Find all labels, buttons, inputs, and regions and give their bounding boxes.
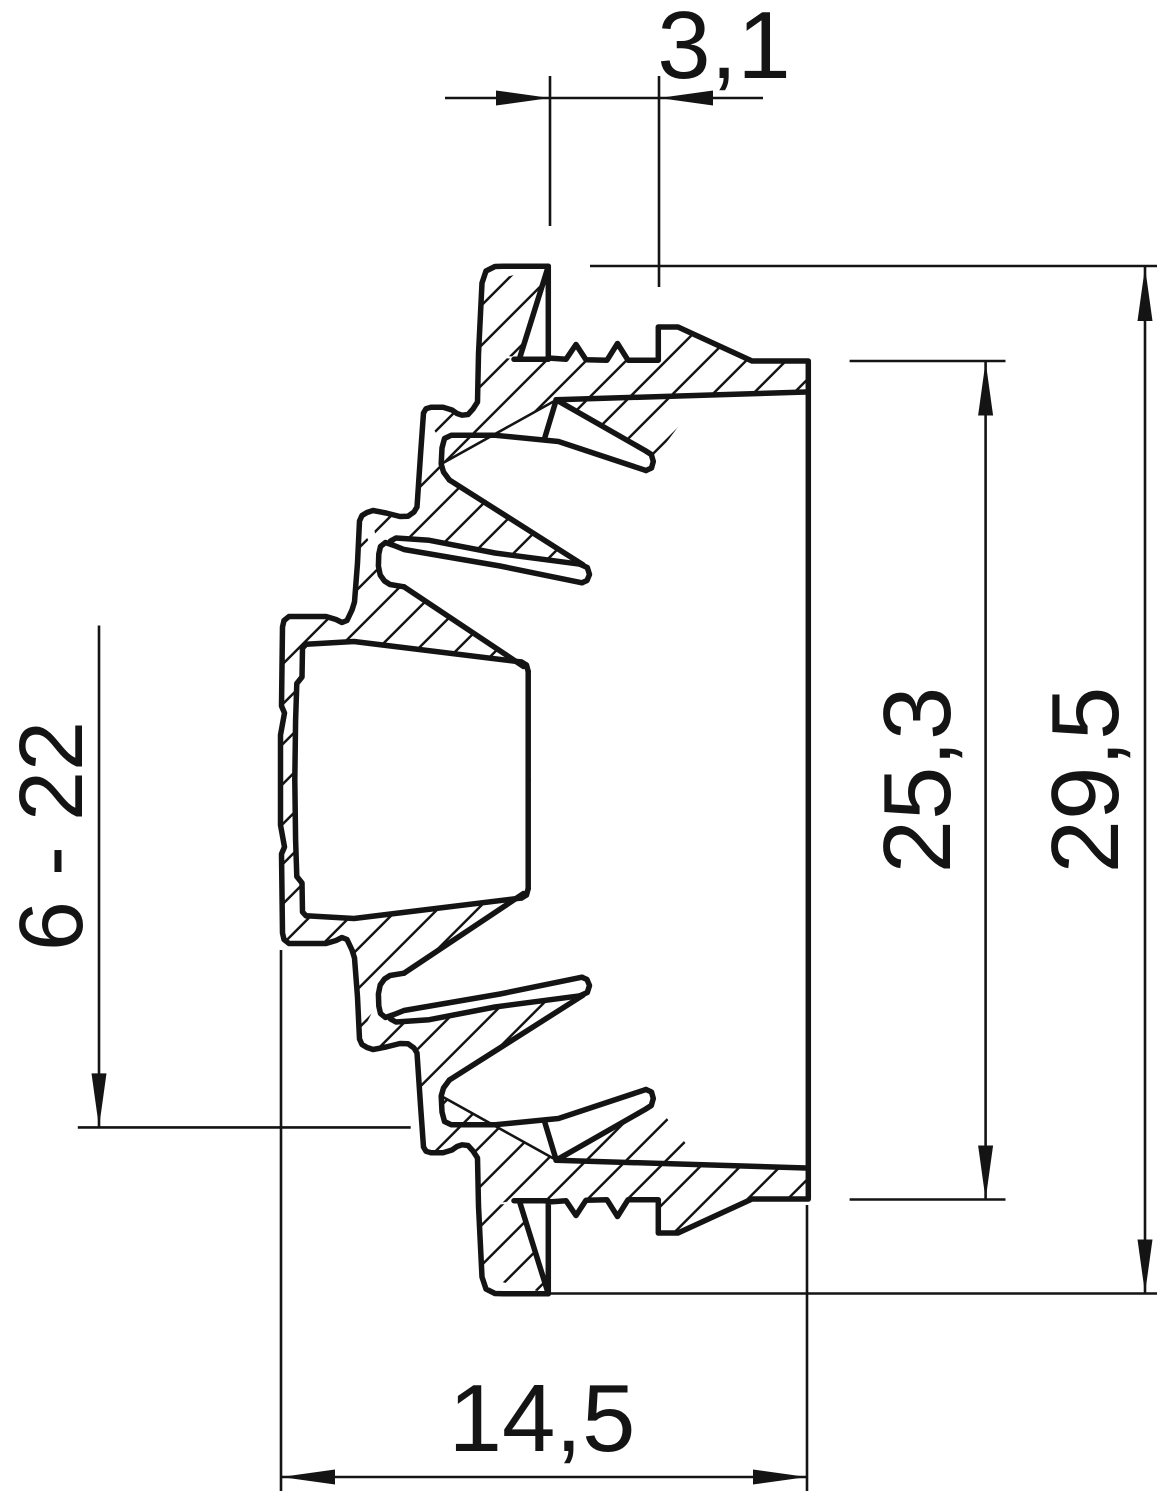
svg-text:29,5: 29,5 xyxy=(1032,687,1139,874)
svg-text:25,3: 25,3 xyxy=(864,687,971,874)
svg-text:6 - 22: 6 - 22 xyxy=(2,721,102,951)
svg-text:14,5: 14,5 xyxy=(449,1365,636,1472)
svg-text:3,1: 3,1 xyxy=(657,0,790,99)
